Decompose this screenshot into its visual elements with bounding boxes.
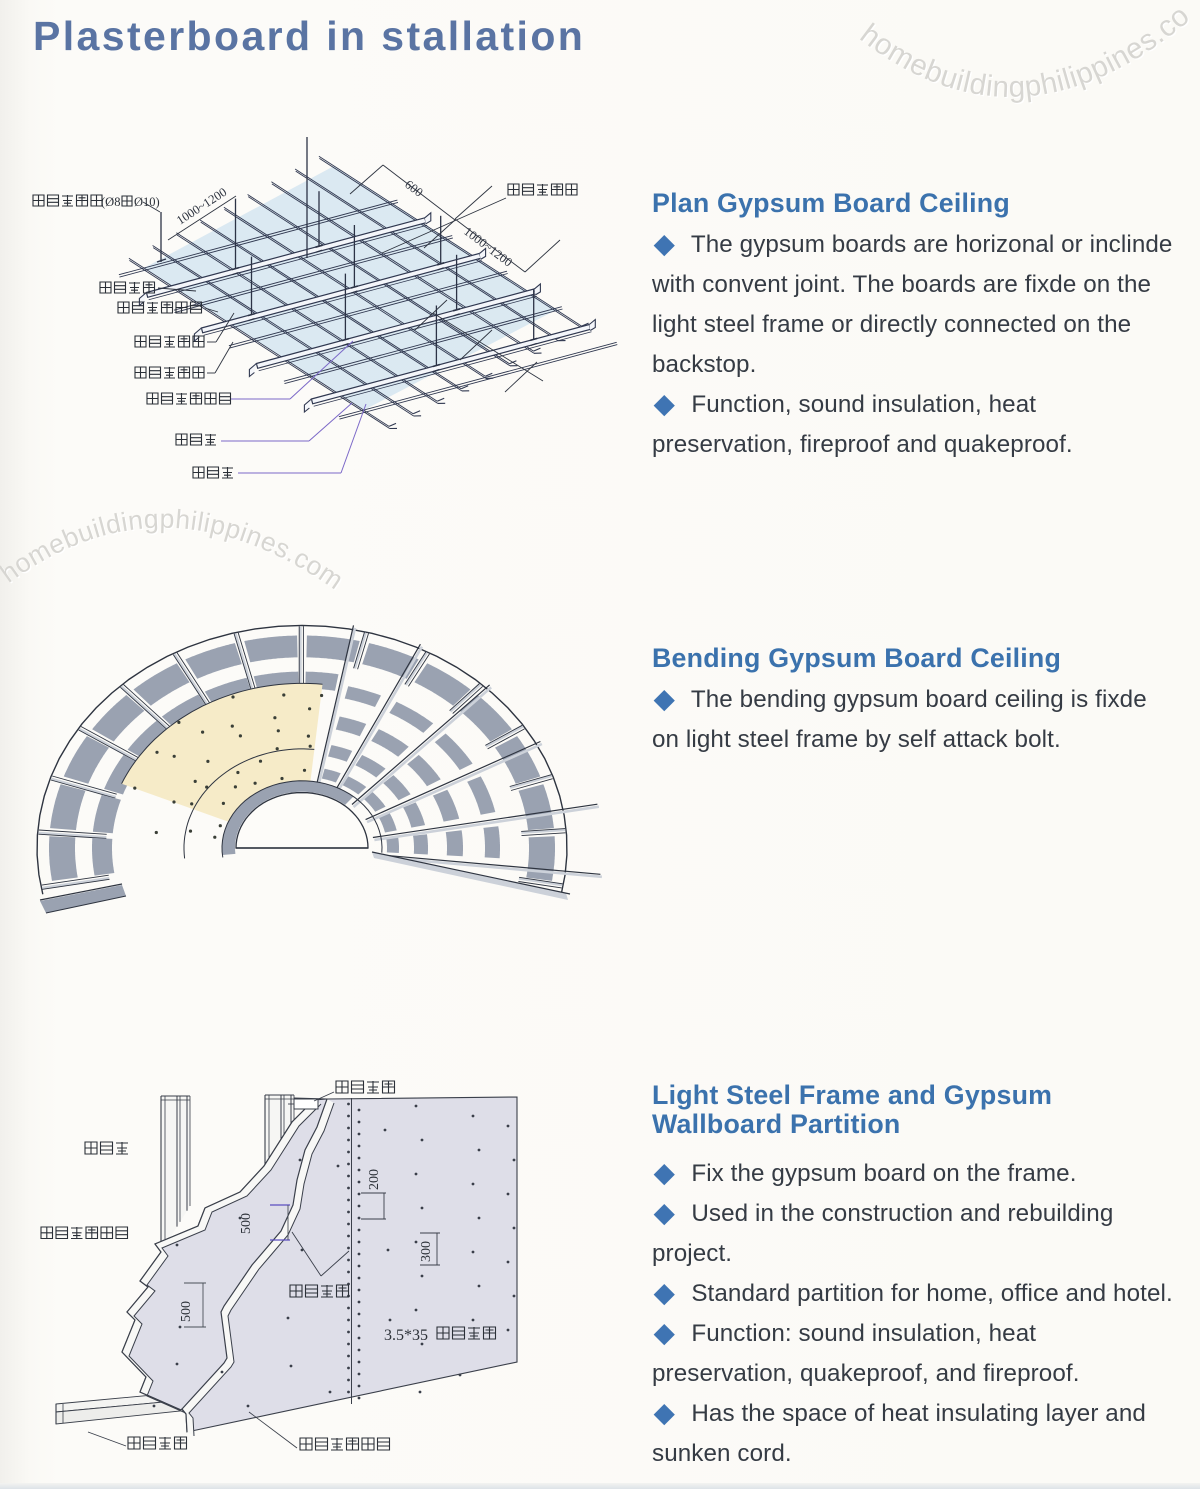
svg-text:200: 200: [367, 1169, 382, 1190]
svg-text:500: 500: [179, 1301, 194, 1322]
svg-text:(Ø8: (Ø8: [101, 195, 120, 209]
svg-text:500: 500: [239, 1213, 254, 1234]
svg-text:600: 600: [402, 177, 425, 199]
svg-text:Ø10): Ø10): [134, 195, 160, 209]
svg-text:300: 300: [419, 1241, 434, 1262]
svg-text:3.5*35: 3.5*35: [384, 1327, 428, 1344]
